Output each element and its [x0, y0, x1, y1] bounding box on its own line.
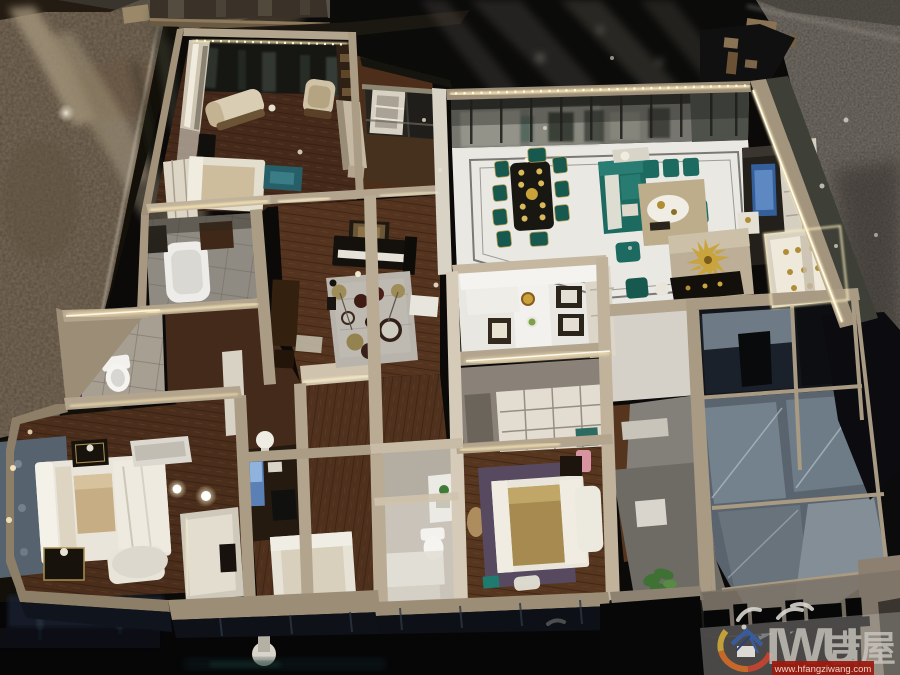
svg-text:www.hfangziwang.com: www.hfangziwang.com [774, 664, 872, 675]
